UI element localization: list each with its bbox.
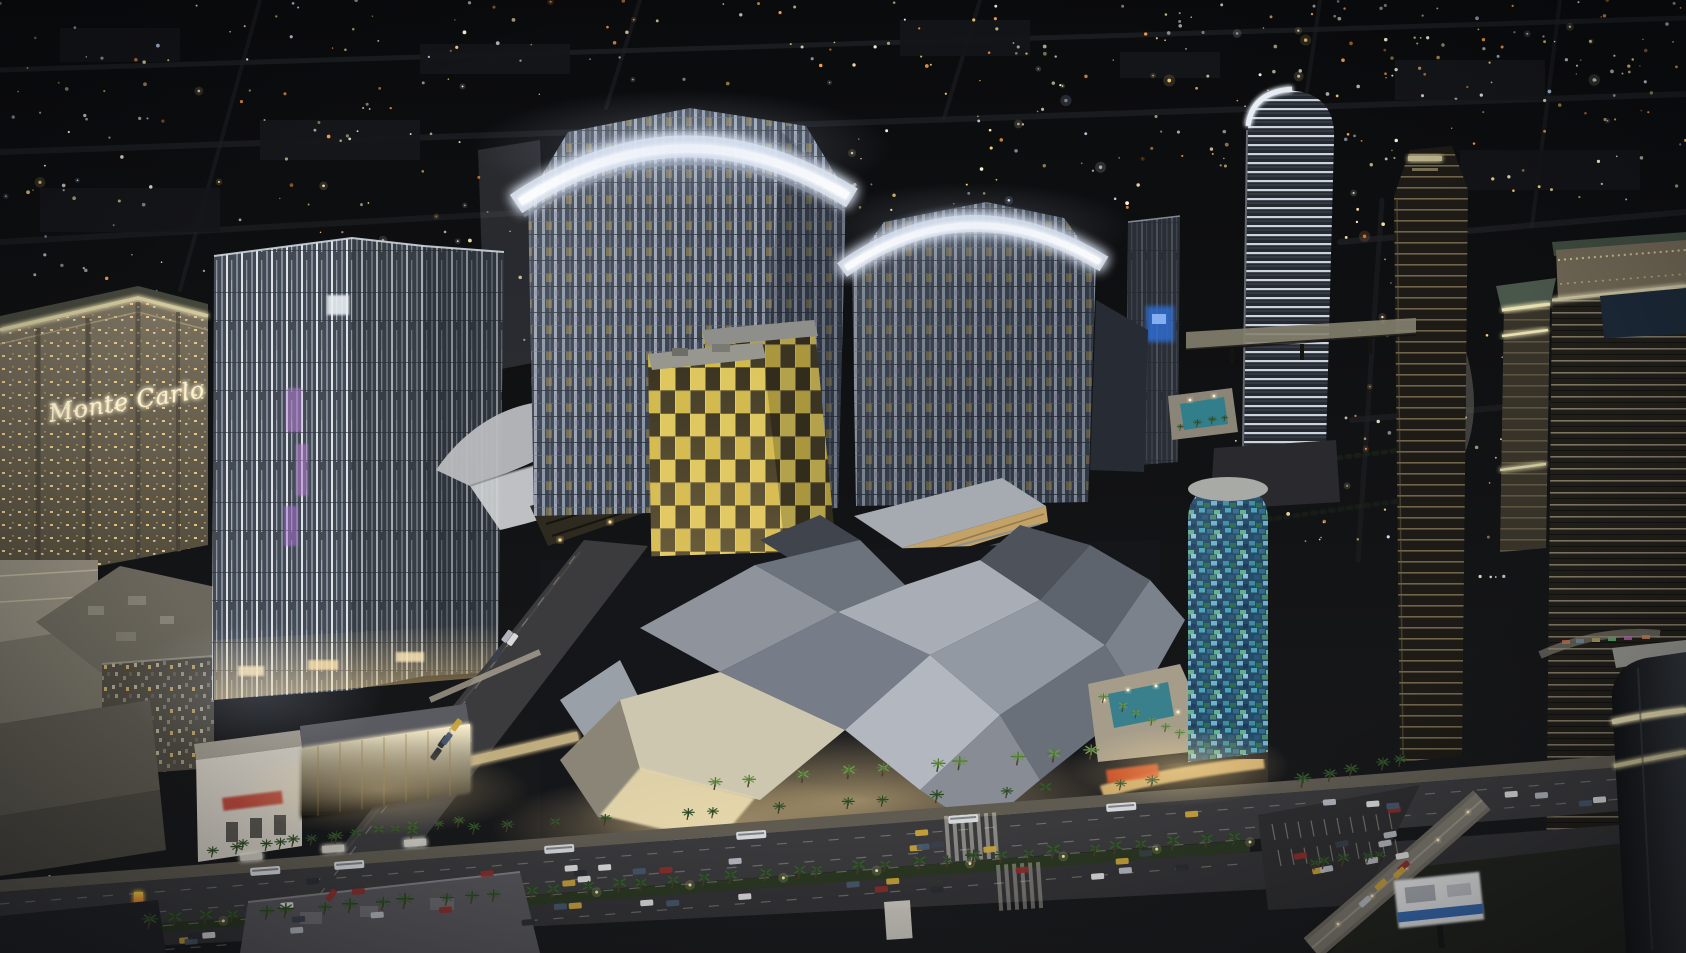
vignette	[0, 0, 1686, 953]
night-aerial-rendering: Monte Carlo Monte Carlo	[0, 0, 1686, 953]
scene-canvas: Monte Carlo Monte Carlo	[0, 0, 1686, 953]
